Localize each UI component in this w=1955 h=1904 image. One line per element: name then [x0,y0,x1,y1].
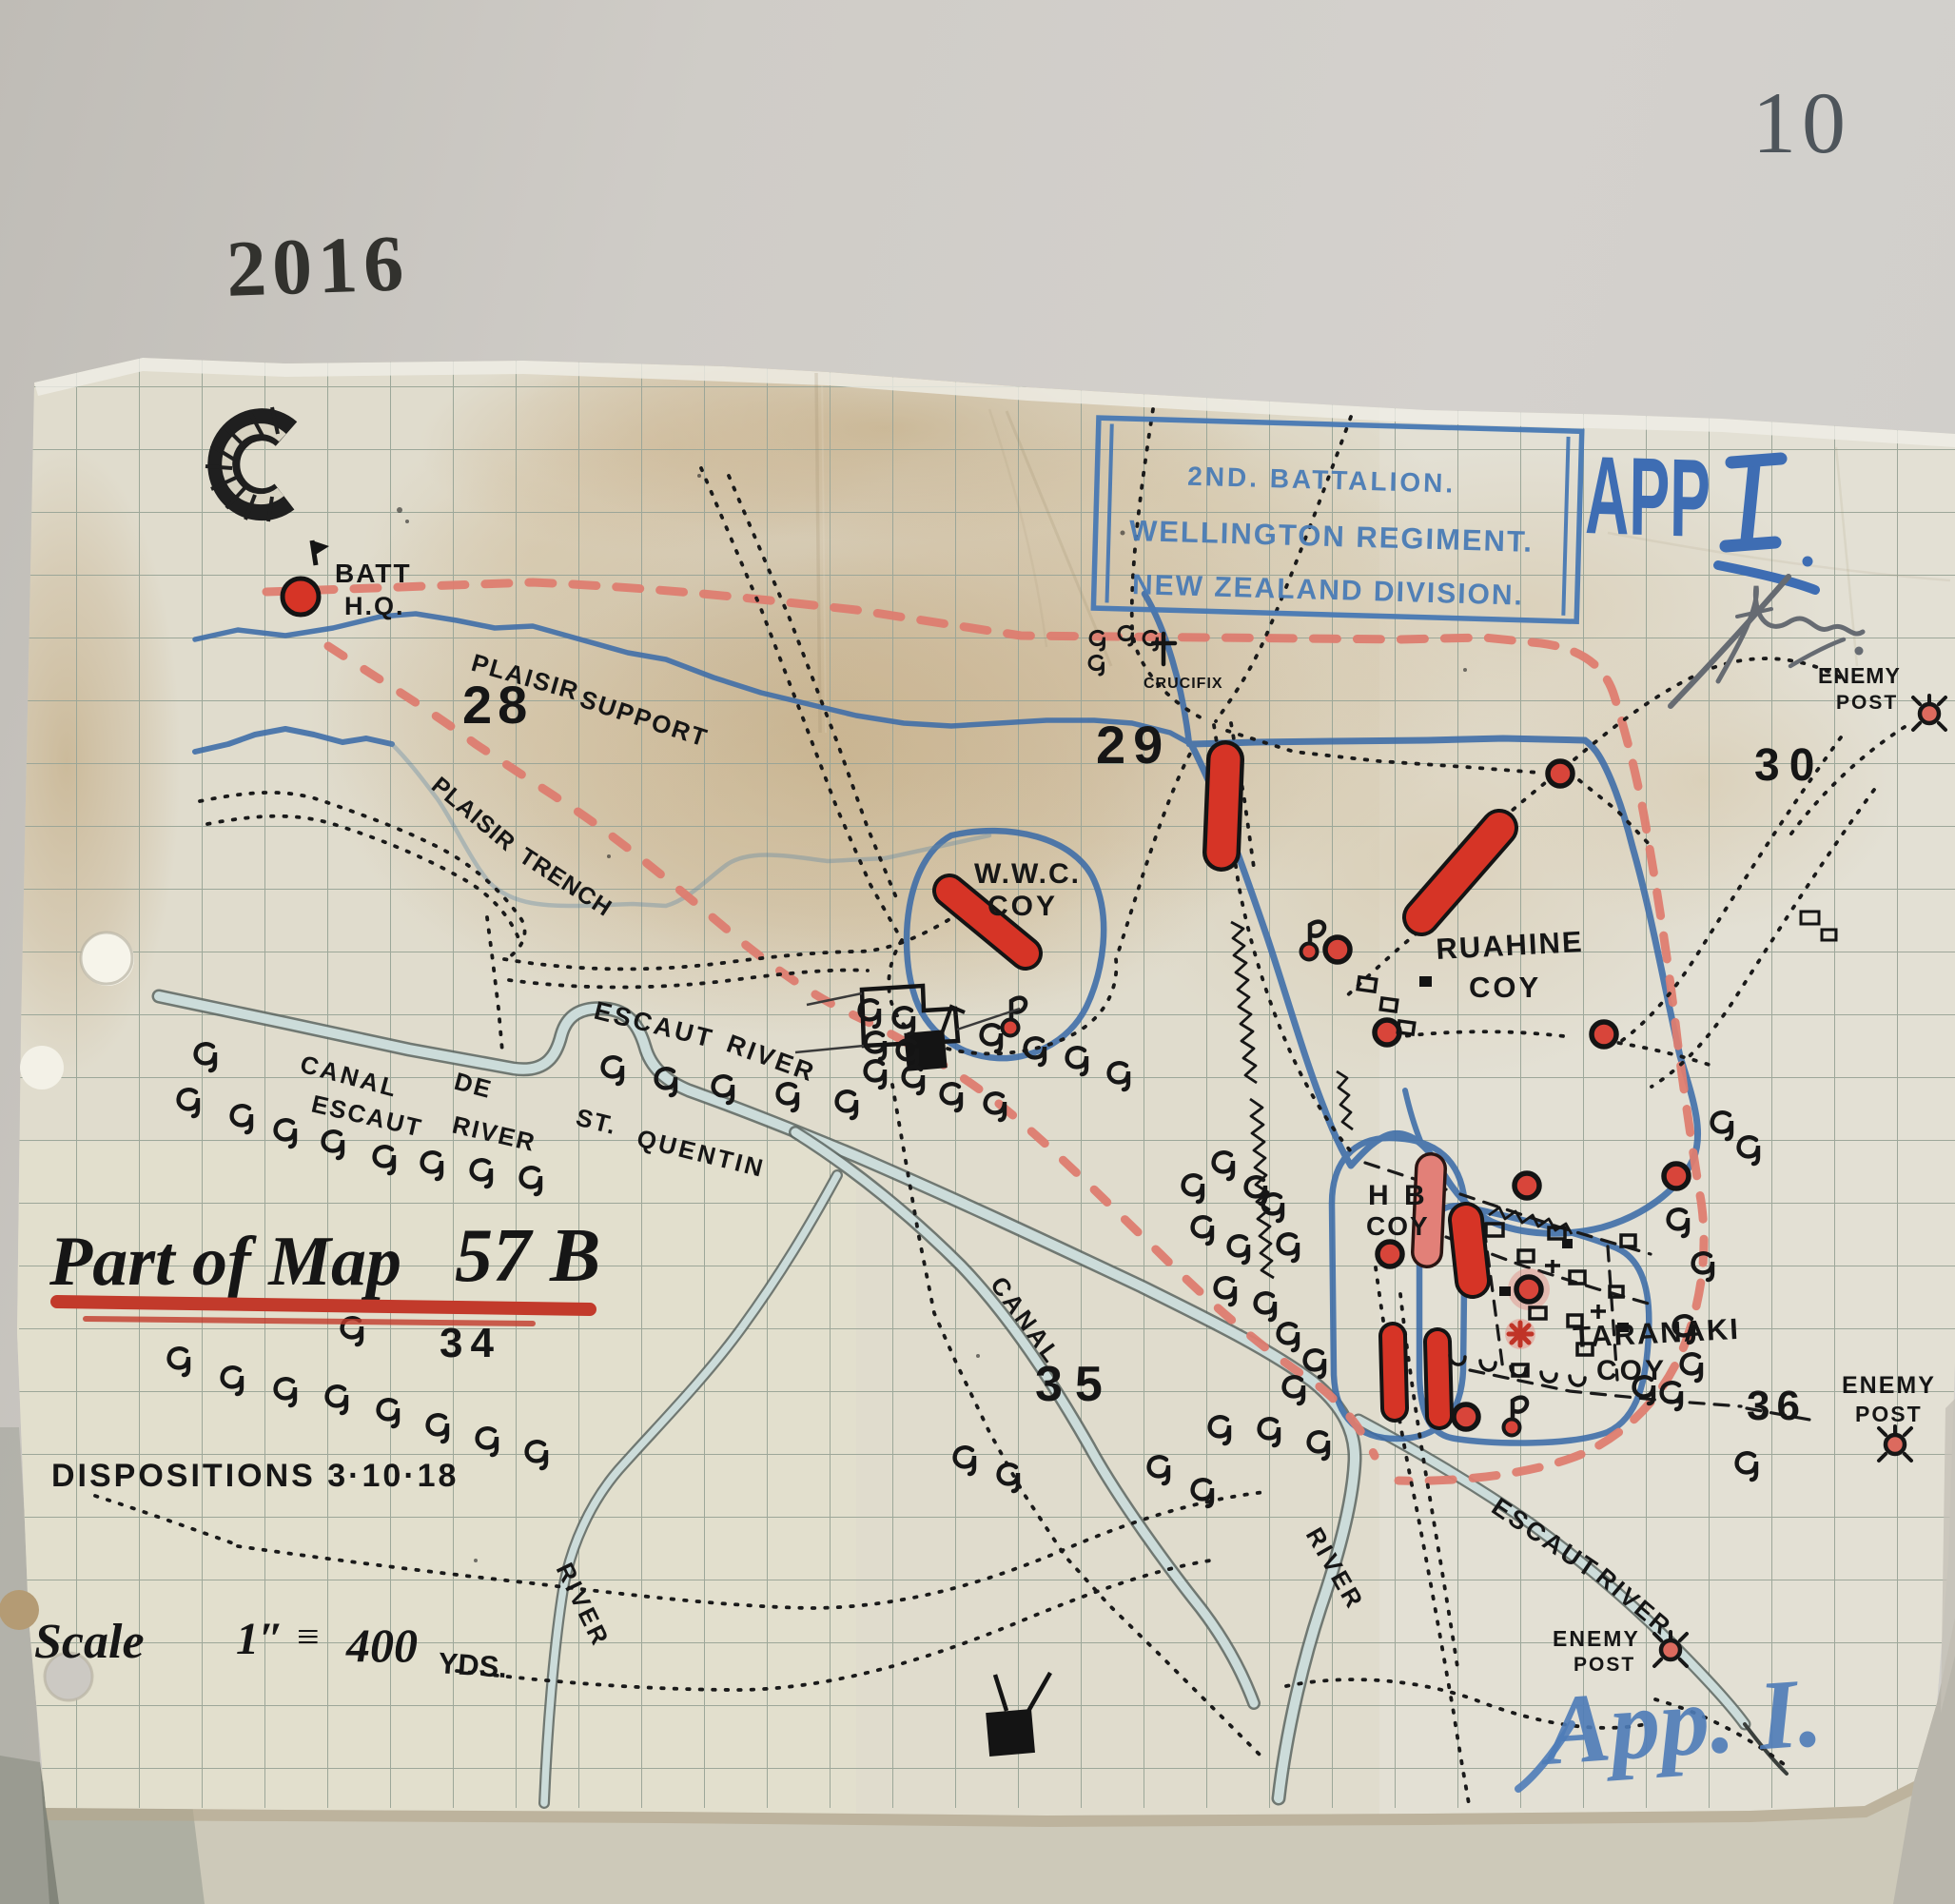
svg-text:1″: 1″ [236,1614,284,1664]
svg-text:Part of Map: Part of Map [49,1223,401,1301]
svg-text:36: 36 [1747,1383,1807,1429]
svg-text:57 B: 57 B [455,1214,600,1298]
svg-text:2016: 2016 [225,219,410,314]
svg-text:ENEMY: ENEMY [1553,1626,1640,1651]
svg-text:App. I.: App. I. [1535,1658,1826,1786]
svg-text:34: 34 [440,1320,501,1366]
svg-text:≡: ≡ [297,1616,320,1659]
svg-text:400: 400 [345,1619,418,1672]
svg-text:ENEMY: ENEMY [1818,663,1901,688]
svg-text:30: 30 [1754,740,1824,791]
svg-text:Scale: Scale [34,1615,145,1669]
svg-text:COY: COY [1366,1211,1430,1241]
svg-text:29: 29 [1096,715,1170,775]
svg-text:POST: POST [1836,692,1898,714]
svg-text:COY: COY [1469,971,1541,1004]
svg-text:BATT: BATT [335,559,412,588]
svg-text:COY: COY [1596,1355,1667,1386]
svg-text:H B: H B [1368,1180,1429,1211]
svg-text:ENEMY: ENEMY [1842,1372,1936,1399]
svg-text:COY: COY [987,891,1058,922]
svg-text:POST: POST [1855,1402,1923,1426]
svg-text:DISPOSITIONS 3·10·18: DISPOSITIONS 3·10·18 [51,1458,459,1494]
svg-text:28: 28 [462,675,533,735]
svg-text:CRUCIFIX: CRUCIFIX [1144,676,1223,692]
svg-text:10: 10 [1752,74,1851,171]
svg-text:APP: APP [1585,433,1711,560]
svg-text:H.Q.: H.Q. [344,592,405,620]
svg-text:W.W.C.: W.W.C. [974,858,1081,890]
svg-text:YDS.: YDS. [438,1646,509,1684]
